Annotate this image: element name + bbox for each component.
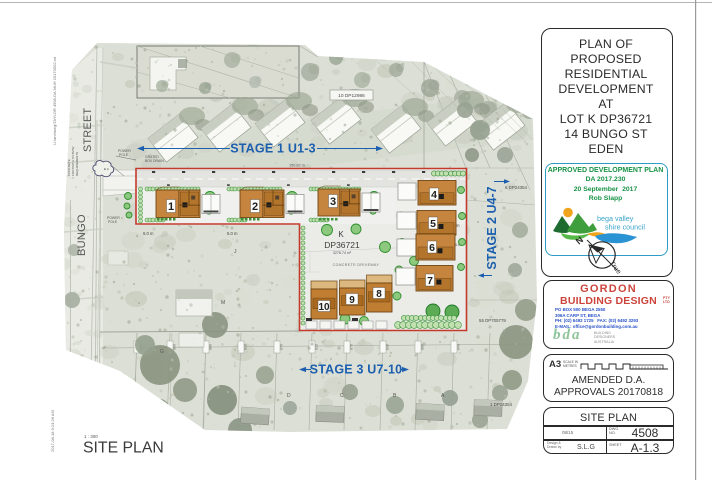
svg-text:830: 830 [386, 344, 390, 350]
svg-text:820: 820 [315, 344, 319, 350]
svg-text:5.0 m: 5.0 m [227, 231, 238, 236]
svg-text:1 : 300: 1 : 300 [84, 434, 98, 439]
svg-text:REQUIREMENTS: REQUIREMENTS [75, 152, 79, 176]
svg-text:STAGE 1 U1-3: STAGE 1 U1-3 [230, 142, 316, 156]
svg-text:True: True [608, 260, 622, 276]
svg-text:2017-08-18 9:24:26 AM: 2017-08-18 9:24:26 AM [50, 410, 55, 452]
svg-text:840: 840 [457, 344, 461, 350]
svg-text:810: 810 [244, 344, 248, 350]
svg-text:SITE PLAN: SITE PLAN [83, 440, 164, 457]
svg-text:M: M [221, 300, 225, 306]
svg-text:870: 870 [350, 344, 354, 350]
svg-text:G: G [160, 349, 164, 355]
svg-text:3: 3 [330, 196, 336, 208]
svg-text:DP36721: DP36721 [324, 240, 360, 250]
svg-text:D: D [287, 393, 291, 399]
svg-text:860: 860 [209, 344, 213, 350]
svg-text:10: 10 [318, 302, 330, 313]
svg-text:3278.74 m²: 3278.74 m² [333, 251, 352, 255]
svg-text:2: 2 [252, 201, 258, 213]
svg-text:K: K [338, 230, 344, 239]
svg-text:E 4: E 4 [104, 167, 109, 171]
svg-text:N: N [574, 235, 585, 247]
svg-text:870: 870 [280, 344, 284, 350]
svg-text:1 DP24354: 1 DP24354 [490, 402, 513, 407]
svg-text:POLE: POLE [108, 220, 118, 224]
svg-text:800: 800 [173, 344, 177, 350]
svg-text:STAGE 2 U4-7: STAGE 2 U4-7 [485, 186, 499, 269]
svg-text:STAGE 3 U7-10: STAGE 3 U7-10 [310, 363, 403, 377]
svg-text:U:\archiveg\TAYLOR 4508-DA MUH: U:\archiveg\TAYLOR 4508-DA MUH 20170502.… [52, 56, 57, 145]
svg-text:9: 9 [349, 295, 355, 306]
svg-text:55 DP705779: 55 DP705779 [479, 318, 506, 323]
svg-text:POLE: POLE [119, 153, 129, 157]
svg-text:6.0 m: 6.0 m [143, 231, 154, 236]
svg-text:150.82 m: 150.82 m [289, 164, 305, 168]
svg-text:10 DP12986: 10 DP12986 [338, 93, 365, 99]
svg-text:8: 8 [376, 289, 382, 300]
svg-text:STREET: STREET [82, 108, 94, 152]
svg-text:BOX DRAIN: BOX DRAIN [145, 159, 164, 163]
svg-text:BUNGO: BUNGO [76, 214, 88, 256]
svg-text:4: 4 [431, 189, 437, 201]
svg-text:5: 5 [430, 218, 436, 230]
svg-text:7: 7 [427, 275, 433, 287]
svg-text:CONCRETE DRIVEWAY: CONCRETE DRIVEWAY [333, 263, 380, 267]
svg-text:6 DP24354: 6 DP24354 [505, 185, 528, 190]
svg-text:C: C [340, 393, 344, 399]
svg-text:1: 1 [168, 201, 174, 213]
svg-text:6: 6 [429, 242, 435, 254]
